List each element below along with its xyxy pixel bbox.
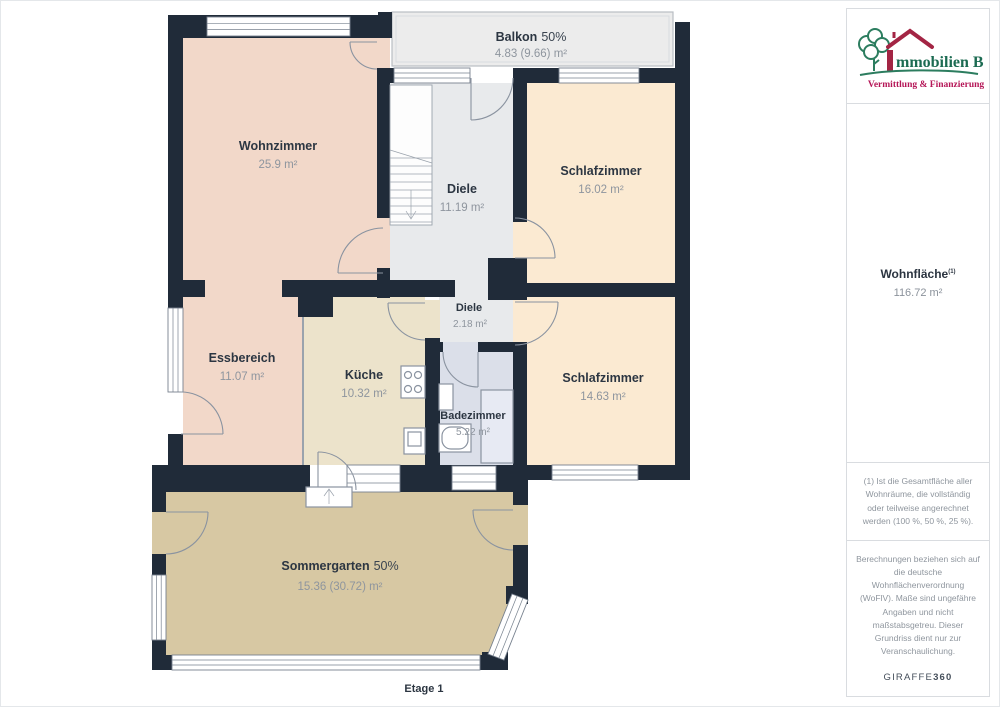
sommergarten-floor [166,492,513,657]
room-label-sommergarten: Sommergarten50% [281,559,398,573]
giraffe360-watermark: GIRAFFE360 [856,671,980,686]
room-area-balkon: 4.83 (9.66) m² [495,48,567,60]
room-area-wohnzimmer: 25.9 m² [259,159,298,171]
tree-icon [859,29,889,71]
room-area-badezimmer: 5.22 m² [456,427,491,438]
room-label-schlafzimmer1: Schlafzimmer [560,164,641,178]
brand-tagline: Vermittlung & Finanzierung [868,80,984,90]
info-sidebar: mmobilien Bart Vermittlung & Finanzierun… [846,8,990,697]
room-area-essbereich: 11.07 m² [220,371,265,383]
living-area-box: Wohnfläche(1) 116.72 m² [846,103,990,463]
company-logo: mmobilien Bart Vermittlung & Finanzierun… [852,19,984,93]
room-label-diele2: Diele [456,302,482,314]
room-label-schlafzimmer2: Schlafzimmer [562,371,643,385]
room-label-kueche: Küche [345,368,383,382]
room-label-wohnzimmer: Wohnzimmer [239,139,317,153]
floorplan-page: Balkon50% 4.83 (9.66) m² Wohnzimmer 25.9… [0,0,1000,707]
footnote-text: (1) Ist die Gesamtfläche aller Wohnräume… [846,462,990,541]
disclaimer-box: Berechnungen beziehen sich auf die deuts… [846,540,990,697]
schlafzimmer1-floor [527,83,675,283]
room-label-balkon: Balkon50% [496,30,567,44]
diele-connector-floor [455,280,488,297]
wohnzimmer-essbereich-opening [205,280,282,297]
footnote-marker: (1) [948,269,955,275]
logo-box: mmobilien Bart Vermittlung & Finanzierun… [846,8,990,104]
brand-i-mark [887,50,893,71]
logo-swoosh [860,70,978,75]
roof-icon [888,31,932,47]
floor-label: Etage 1 [404,683,443,695]
room-label-diele: Diele [447,182,477,196]
staircase [390,85,432,225]
room-label-badezimmer: Badezimmer [440,410,506,422]
room-area-sommergarten: 15.36 (30.72) m² [297,581,382,593]
room-area-diele: 11.19 m² [440,202,485,214]
disclaimer-text: Berechnungen beziehen sich auf die deuts… [856,553,980,658]
living-area-value: 116.72 m² [894,287,943,299]
floorplan-drawing: Balkon50% 4.83 (9.66) m² Wohnzimmer 25.9… [0,0,845,707]
bathroom-sink-icon [439,384,453,410]
room-label-essbereich: Essbereich [209,351,276,365]
stove-icon [401,366,425,398]
room-area-diele2: 2.18 m² [453,319,488,330]
room-area-schlafzimmer1: 16.02 m² [578,184,624,196]
room-area-schlafzimmer2: 14.63 m² [580,391,626,403]
room-area-kueche: 10.32 m² [341,388,387,400]
living-area-label: Wohnfläche(1) [880,267,955,281]
brand-name: mmobilien Bart [896,54,984,71]
